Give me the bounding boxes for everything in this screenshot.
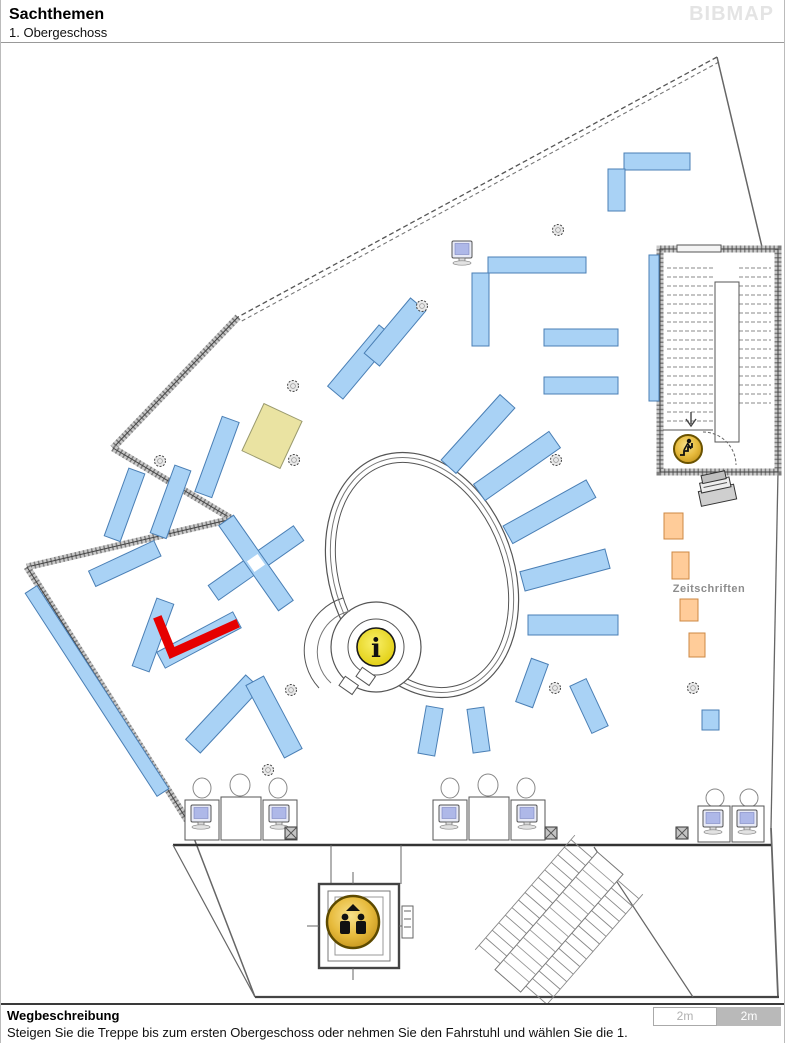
bookshelves [25,153,719,796]
page-header: Sachthemen 1. Obergeschoss BIBMAP [1,0,784,43]
directions-panel: Wegbeschreibung Steigen Sie die Treppe b… [1,1003,784,1043]
floor-plan-map: i [1,0,785,1043]
staircase-upper-right [660,245,778,472]
magazines-label: Zeitschriften [673,583,746,595]
bibmap-page: i [0,0,785,1043]
elevator-icon [327,896,379,948]
directions-text: Steigen Sie die Treppe bis zum ersten Ob… [7,1025,778,1040]
elevator [307,872,413,980]
magazine-shelves: Zeitschriften [664,513,745,657]
info-glyph: i [371,634,381,664]
floor-subtitle: 1. Obergeschoss [9,25,776,40]
page-title: Sachthemen [9,6,776,24]
info-desk: i [304,598,421,695]
bibmap-logo: BIBMAP [689,3,774,26]
staircase-lower [474,834,644,1011]
info-icon: i [357,628,395,666]
scale-segment-dark: 2m [717,1007,781,1026]
stairs-up-icon [674,435,702,463]
scale-segment-light: 2m [653,1007,717,1026]
map-scale-bar: 2m 2m [653,1007,781,1026]
